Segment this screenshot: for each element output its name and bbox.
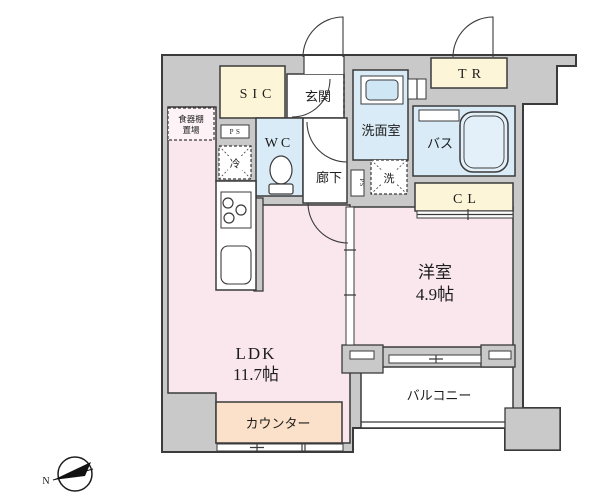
floorplan-canvas: N SIC 玄関 TR 洗面室 バス WC 廊下 CL 洋室 4.9帖 LDK …: [0, 0, 604, 503]
label-dish-shelf-1: 食器棚: [178, 114, 204, 124]
label-wc: WC: [265, 136, 294, 151]
washbasin-bowl: [366, 80, 398, 100]
room-hallway: [303, 118, 347, 203]
tr-door-arc: [453, 17, 493, 57]
label-ps-top: PS: [230, 128, 243, 136]
floorplan: N SIC 玄関 TR 洗面室 バス WC 廊下 CL 洋室 4.9帖 LDK …: [0, 0, 604, 503]
label-western-room: 洋室: [418, 263, 452, 282]
label-ldk: LDK: [236, 344, 277, 363]
label-bath: バス: [427, 136, 453, 151]
pillar-vent-left: [350, 351, 374, 359]
label-senmen: 洗面室: [361, 123, 400, 138]
dish-shelf-area: [168, 108, 214, 140]
bath-counter: [419, 110, 459, 121]
label-washer: 洗: [384, 172, 395, 185]
entrance-door-opening: [304, 56, 344, 74]
sink-icon: [221, 246, 251, 284]
label-western-room-size: 4.9帖: [416, 285, 454, 304]
pillar-bottom-right: [505, 408, 560, 450]
label-cl: CL: [453, 192, 481, 207]
toilet-bowl-icon: [270, 156, 292, 184]
toilet-tank-icon: [269, 184, 293, 194]
ldk-western-sliding-door: [346, 207, 354, 345]
label-counter: カウンター: [245, 416, 310, 431]
label-ps-side: PS: [358, 179, 364, 188]
label-balcony: バルコニー: [407, 388, 472, 403]
bathtub: [460, 112, 508, 172]
label-ldk-size: 11.7帖: [233, 365, 279, 384]
label-genkan: 玄関: [305, 89, 331, 104]
compass-north-label: N: [42, 476, 49, 487]
label-dish-shelf-2: 置場: [182, 125, 200, 135]
label-sic: SIC: [240, 87, 277, 102]
ldk-window: [217, 444, 343, 451]
label-tr: TR: [458, 67, 486, 82]
label-hallway: 廊下: [316, 170, 342, 185]
pillar-vent-right: [489, 351, 511, 359]
label-refrigerator: 冷: [230, 157, 241, 170]
entrance-door-arc: [303, 17, 343, 57]
